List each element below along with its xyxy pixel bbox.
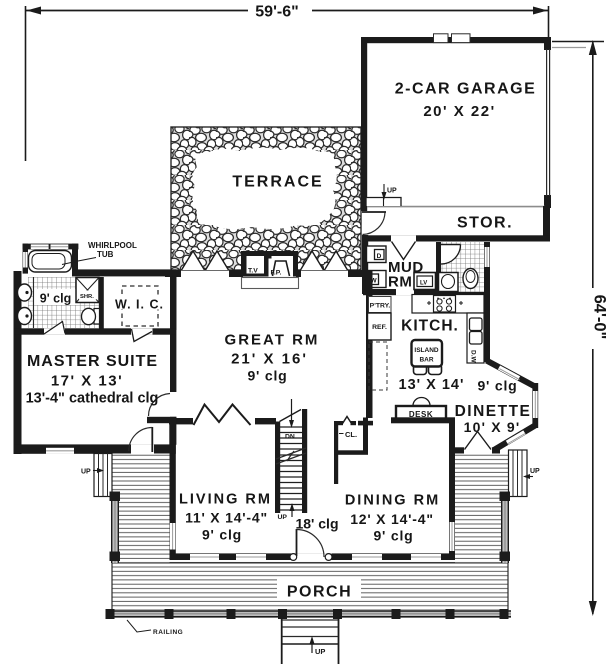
svg-text:11' X 14'-4": 11' X 14'-4" bbox=[185, 510, 268, 526]
svg-text:TERRACE: TERRACE bbox=[232, 174, 323, 191]
svg-text:DINING RM: DINING RM bbox=[345, 493, 440, 509]
svg-text:SHR.: SHR. bbox=[80, 294, 94, 300]
svg-text:9' clg: 9' clg bbox=[40, 292, 71, 306]
svg-text:D.W: D.W bbox=[470, 350, 477, 364]
svg-text:20' X 22': 20' X 22' bbox=[423, 103, 495, 120]
svg-text:13' X 14': 13' X 14' bbox=[399, 377, 465, 393]
svg-text:DINETTE: DINETTE bbox=[455, 403, 532, 420]
svg-text:F.P.: F.P. bbox=[271, 270, 282, 277]
svg-text:WHIRLPOOL: WHIRLPOOL bbox=[88, 241, 137, 250]
svg-text:D: D bbox=[377, 253, 382, 260]
svg-text:CL.: CL. bbox=[345, 430, 357, 439]
svg-text:ISLAND: ISLAND bbox=[414, 347, 439, 354]
svg-text:UP: UP bbox=[530, 468, 540, 475]
svg-text:MASTER SUITE: MASTER SUITE bbox=[27, 353, 158, 370]
svg-text:2-CAR GARAGE: 2-CAR GARAGE bbox=[395, 81, 537, 98]
svg-text:DN.: DN. bbox=[285, 434, 297, 441]
svg-text:UP: UP bbox=[315, 647, 325, 656]
svg-text:10' X 9': 10' X 9' bbox=[464, 419, 521, 435]
svg-text:KITCH.: KITCH. bbox=[401, 318, 459, 335]
svg-text:PORCH: PORCH bbox=[287, 584, 352, 601]
svg-text:BAR: BAR bbox=[419, 357, 433, 364]
svg-text:59'-6": 59'-6" bbox=[255, 4, 298, 21]
svg-text:UP: UP bbox=[387, 188, 397, 195]
svg-text:TUB: TUB bbox=[97, 250, 114, 259]
svg-text:17' X 13': 17' X 13' bbox=[51, 373, 123, 390]
svg-text:64'-0": 64'-0" bbox=[591, 295, 609, 340]
svg-text:9' clg: 9' clg bbox=[247, 368, 287, 384]
svg-text:LV: LV bbox=[420, 281, 427, 287]
svg-text:12' X 14'-4": 12' X 14'-4" bbox=[350, 511, 434, 527]
svg-text:9' clg: 9' clg bbox=[373, 528, 413, 544]
svg-text:21' X 16': 21' X 16' bbox=[231, 351, 308, 368]
svg-text:RM: RM bbox=[388, 274, 412, 291]
svg-text:STOR.: STOR. bbox=[457, 215, 513, 232]
svg-text:GREAT RM: GREAT RM bbox=[225, 332, 320, 349]
svg-text:9' clg: 9' clg bbox=[202, 527, 242, 543]
svg-text:W. I. C.: W. I. C. bbox=[115, 298, 164, 312]
svg-text:RAILING: RAILING bbox=[153, 629, 183, 636]
svg-text:13'-4" cathedral clg: 13'-4" cathedral clg bbox=[26, 391, 159, 407]
svg-text:T.V: T.V bbox=[248, 268, 258, 275]
svg-text:LIVING RM: LIVING RM bbox=[179, 492, 272, 508]
svg-text:P'TRY.: P'TRY. bbox=[370, 303, 391, 310]
svg-text:9' clg: 9' clg bbox=[477, 378, 517, 394]
svg-text:18' clg: 18' clg bbox=[295, 516, 338, 532]
svg-text:UP: UP bbox=[81, 469, 91, 476]
svg-text:UP: UP bbox=[278, 514, 288, 521]
svg-text:REF.: REF. bbox=[372, 324, 387, 331]
